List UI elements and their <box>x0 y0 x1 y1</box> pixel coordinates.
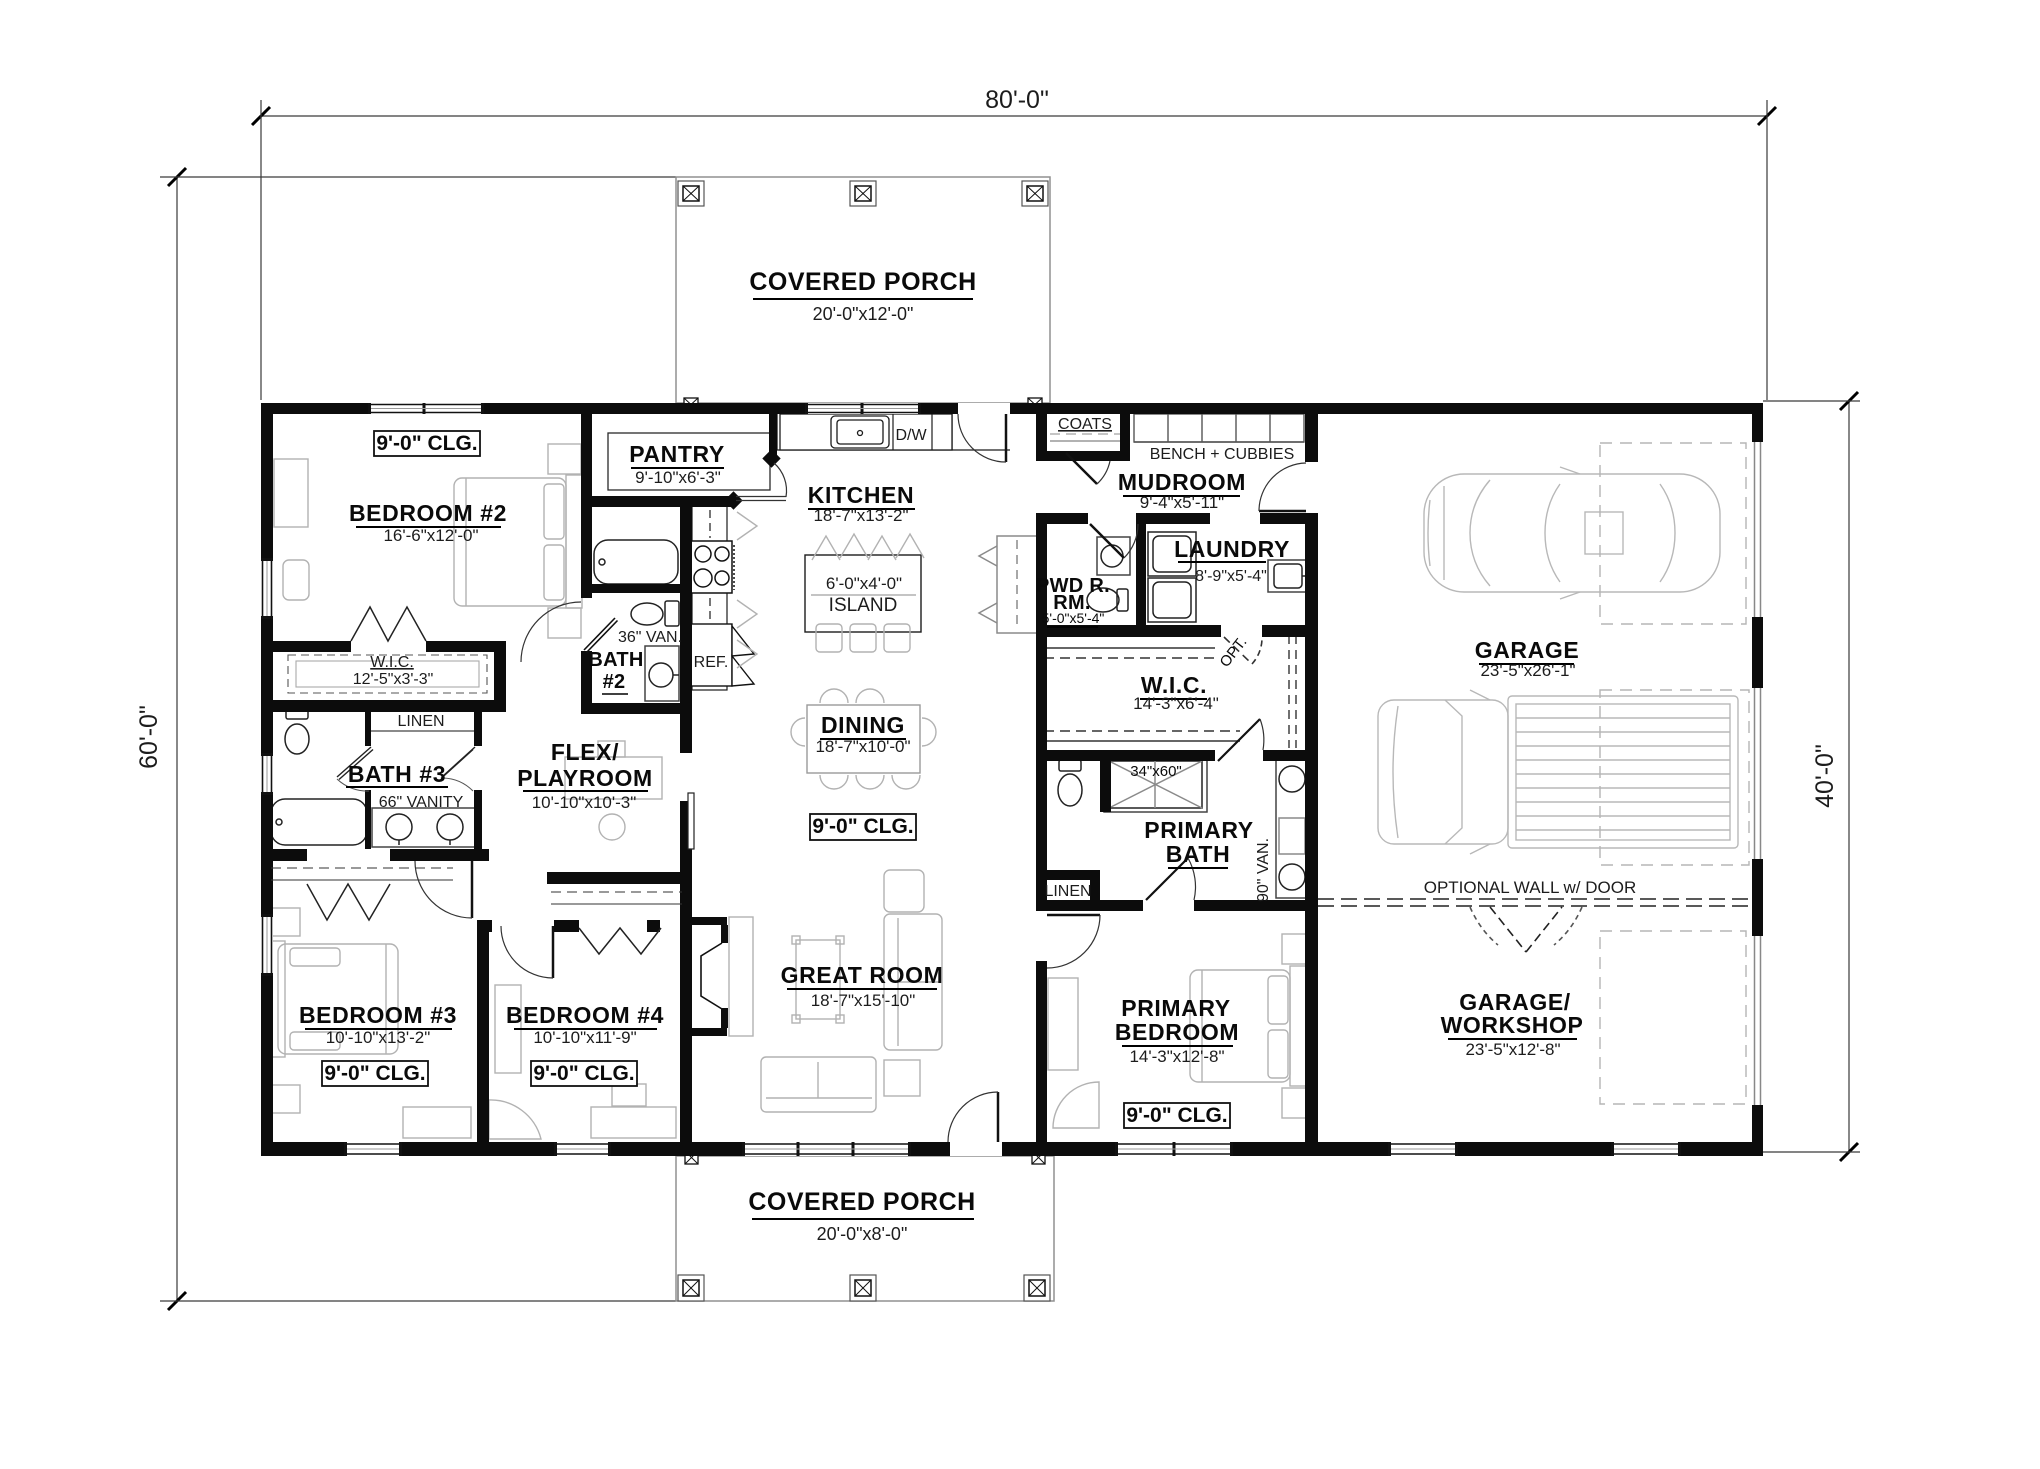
svg-text:60'-0": 60'-0" <box>135 705 163 769</box>
svg-text:BATH: BATH <box>1166 841 1231 867</box>
svg-text:16'-6"x12'-0": 16'-6"x12'-0" <box>383 526 478 545</box>
svg-text:36" VAN.: 36" VAN. <box>618 629 682 646</box>
svg-text:WORKSHOP: WORKSHOP <box>1441 1012 1584 1038</box>
svg-text:LAUNDRY: LAUNDRY <box>1174 536 1290 562</box>
svg-text:9'-0" CLG.: 9'-0" CLG. <box>533 1062 634 1085</box>
svg-text:REF.: REF. <box>694 654 729 671</box>
svg-text:9'-0" CLG.: 9'-0" CLG. <box>1126 1104 1227 1127</box>
svg-text:BEDROOM #4: BEDROOM #4 <box>506 1002 664 1028</box>
svg-text:20'-0"x12'-0": 20'-0"x12'-0" <box>813 304 914 324</box>
svg-text:23'-5"x12'-8": 23'-5"x12'-8" <box>1465 1040 1560 1059</box>
svg-text:9'-10"x6'-3": 9'-10"x6'-3" <box>635 468 721 487</box>
svg-text:COVERED PORCH: COVERED PORCH <box>748 1188 975 1216</box>
svg-text:10'-10"x10'-3": 10'-10"x10'-3" <box>532 793 637 812</box>
svg-text:PRIMARY: PRIMARY <box>1121 995 1230 1021</box>
svg-text:FLEX/: FLEX/ <box>551 739 619 765</box>
svg-text:5'-0"x5'-4": 5'-0"x5'-4" <box>1042 610 1105 626</box>
svg-text:D/W: D/W <box>895 427 927 444</box>
svg-text:12'-5"x3'-3": 12'-5"x3'-3" <box>353 671 434 688</box>
svg-text:10'-10"x11'-9": 10'-10"x11'-9" <box>533 1028 636 1047</box>
svg-text:PRIMARY: PRIMARY <box>1144 817 1253 843</box>
svg-text:BENCH + CUBBIES: BENCH + CUBBIES <box>1150 446 1294 463</box>
svg-text:COVERED PORCH: COVERED PORCH <box>749 268 976 296</box>
svg-text:COATS: COATS <box>1058 416 1112 433</box>
svg-text:BEDROOM #3: BEDROOM #3 <box>299 1002 457 1028</box>
svg-text:MUDROOM: MUDROOM <box>1118 469 1246 495</box>
svg-text:GREAT ROOM: GREAT ROOM <box>781 962 944 988</box>
svg-text:14'-3"x6'-4": 14'-3"x6'-4" <box>1133 694 1219 713</box>
svg-text:KITCHEN: KITCHEN <box>808 482 914 508</box>
svg-text:90" VAN.: 90" VAN. <box>1255 838 1272 902</box>
svg-text:66" VANITY: 66" VANITY <box>379 794 464 811</box>
svg-text:18'-7"x15'-10": 18'-7"x15'-10" <box>811 991 916 1010</box>
svg-text:BATH #3: BATH #3 <box>348 761 446 787</box>
svg-text:14'-3"x12'-8": 14'-3"x12'-8" <box>1129 1047 1224 1066</box>
svg-text:40'-0": 40'-0" <box>1811 744 1839 808</box>
svg-text:9'-0" CLG.: 9'-0" CLG. <box>376 432 477 455</box>
svg-text:LINEN: LINEN <box>397 713 444 730</box>
svg-text:80'-0": 80'-0" <box>985 86 1049 114</box>
svg-text:10'-10"x13'-2": 10'-10"x13'-2" <box>326 1028 431 1047</box>
svg-text:DINING: DINING <box>821 712 905 738</box>
svg-text:W.I.C.: W.I.C. <box>370 654 414 671</box>
svg-text:18'-7"x13'-2": 18'-7"x13'-2" <box>813 506 908 525</box>
svg-text:9'-0" CLG.: 9'-0" CLG. <box>324 1062 425 1085</box>
svg-text:BATH: BATH <box>588 649 643 671</box>
svg-text:18'-7"x10'-0": 18'-7"x10'-0" <box>815 737 910 756</box>
svg-text:PLAYROOM: PLAYROOM <box>517 765 653 791</box>
svg-text:#2: #2 <box>603 671 626 693</box>
svg-text:23'-5"x26'-1": 23'-5"x26'-1" <box>1480 661 1575 680</box>
svg-text:PANTRY: PANTRY <box>629 441 725 467</box>
svg-text:BEDROOM: BEDROOM <box>1115 1019 1239 1045</box>
svg-text:ISLAND: ISLAND <box>829 595 898 616</box>
svg-text:BEDROOM #2: BEDROOM #2 <box>349 500 507 526</box>
svg-text:34"x60": 34"x60" <box>1130 763 1182 780</box>
svg-text:OPTIONAL WALL w/ DOOR: OPTIONAL WALL w/ DOOR <box>1424 878 1637 897</box>
svg-text:6'-0"x4'-0": 6'-0"x4'-0" <box>826 574 902 593</box>
svg-text:GARAGE: GARAGE <box>1475 637 1580 663</box>
svg-text:8'-9"x5'-4": 8'-9"x5'-4" <box>1195 568 1267 585</box>
svg-text:20'-0"x8'-0": 20'-0"x8'-0" <box>817 1224 908 1244</box>
svg-text:9'-4"x5'-11": 9'-4"x5'-11" <box>1140 493 1224 512</box>
svg-text:LINEN: LINEN <box>1044 883 1091 900</box>
svg-text:9'-0" CLG.: 9'-0" CLG. <box>812 815 913 838</box>
